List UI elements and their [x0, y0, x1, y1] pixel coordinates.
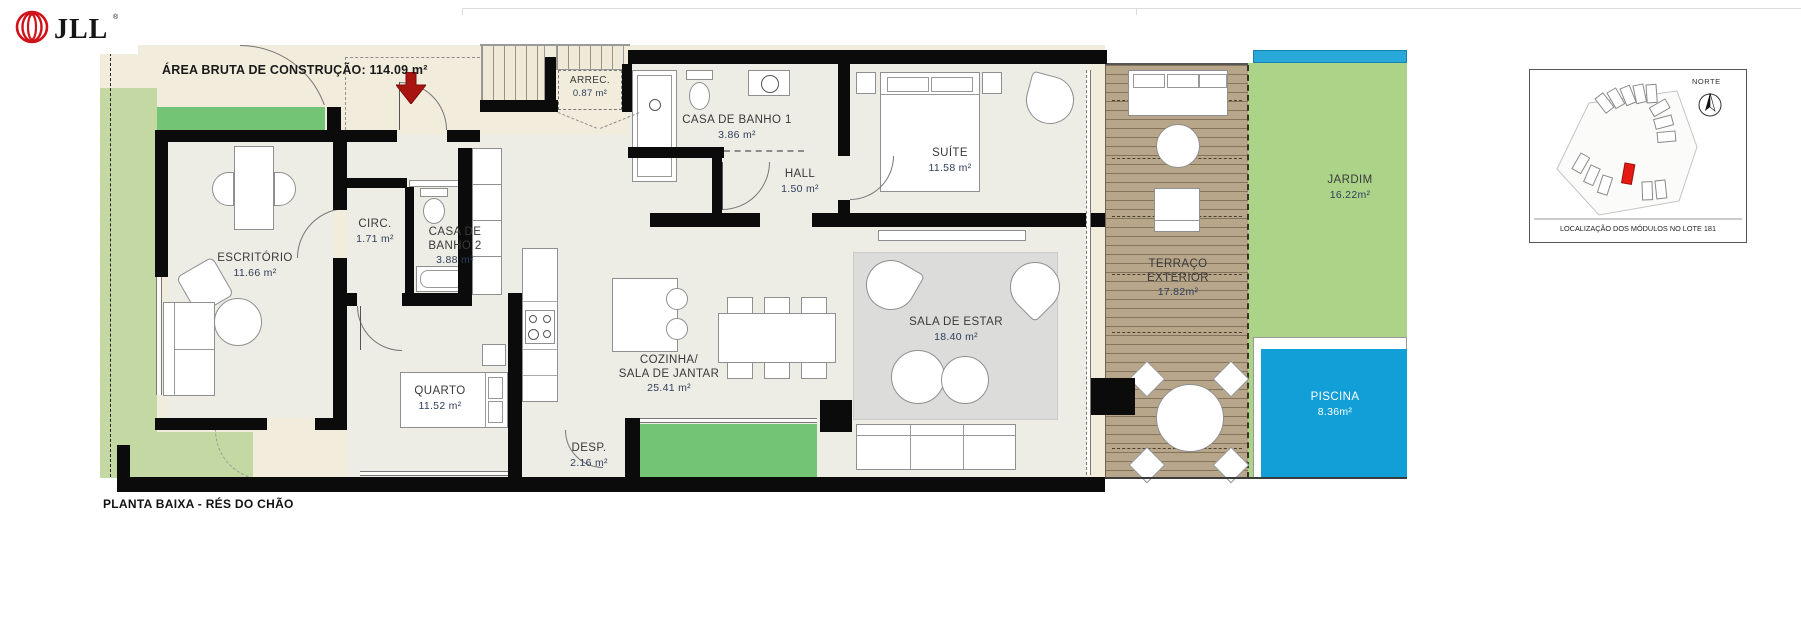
suite-door-arc [850, 156, 894, 200]
room-label-hall: HALL 1.50 m² [760, 168, 840, 195]
front-lawn-strip [157, 107, 325, 130]
dining-chair [764, 362, 790, 379]
north-label: NORTE [1692, 77, 1721, 86]
locator-site-map: NORTE LOCALIZAÇÃO DOS MÓDULOS NO LOTE 18… [1529, 69, 1747, 243]
wall [155, 130, 168, 277]
room-area: 2.16 m² [549, 457, 629, 469]
bath1-door-opening [724, 150, 804, 152]
door-leaf [360, 306, 361, 350]
room-label-cozinha: COZINHA/ SALA DE JANTAR 25.41 m² [594, 354, 744, 394]
wall [838, 200, 850, 213]
wall [347, 178, 407, 188]
outdoor-bottom-edge [1105, 477, 1407, 479]
dining-chair [764, 297, 790, 314]
office-round-table [214, 298, 262, 346]
south-lawn-strip [640, 424, 817, 477]
room-name: ARREC. [552, 75, 628, 87]
chimney [1087, 378, 1135, 415]
room-name: PISCINA [1285, 391, 1385, 405]
media-console [878, 230, 1026, 241]
office-window [156, 277, 162, 395]
washbasin [748, 70, 790, 96]
wall [347, 293, 357, 306]
room-area: 3.88 m² [407, 254, 503, 266]
room-area: 1.50 m² [760, 183, 840, 195]
wall [402, 293, 472, 306]
deck-plank-line [1112, 332, 1242, 333]
wall [327, 107, 341, 130]
toilet-bowl [689, 82, 710, 110]
stairs [481, 45, 545, 107]
wall [812, 213, 1105, 227]
wall [628, 50, 1107, 64]
suite-bed [880, 72, 980, 192]
room-area: 8.36m² [1285, 406, 1385, 418]
wall [117, 445, 130, 492]
bedroom-door-arc [357, 306, 402, 351]
room-name: CASA DE BANHO 2 [407, 226, 503, 253]
top-rule [462, 8, 1801, 9]
wall [333, 142, 347, 210]
wall [650, 213, 760, 227]
wall [820, 400, 852, 432]
room-name: QUARTO [380, 385, 500, 399]
property-boundary-line [110, 48, 111, 477]
office-desk [234, 146, 274, 230]
module [1646, 84, 1657, 103]
toilet [420, 188, 448, 197]
deck-sofa [1128, 70, 1228, 116]
wall [628, 147, 724, 158]
room-area: 25.41 m² [594, 382, 744, 394]
room-label-quarto: QUARTO 11.52 m² [380, 385, 500, 412]
room-label-desp: DESP. 2.16 m² [549, 442, 629, 469]
room-area: 17.82m² [1118, 286, 1238, 298]
toilet-bowl [423, 198, 445, 224]
registered-mark: ® [113, 13, 119, 21]
bedroom-side-table [482, 344, 506, 366]
wall [838, 64, 850, 156]
room-area: 3.86 m² [652, 129, 822, 141]
wall [155, 418, 267, 430]
brand-logo-text: JLL [54, 14, 108, 45]
wall [117, 477, 1105, 492]
dining-chair [801, 362, 827, 379]
bedroom-window [360, 471, 508, 476]
deck-top-edge [1105, 63, 1248, 65]
dining-chair [801, 297, 827, 314]
room-name: TERRAÇO EXTERIOR [1118, 258, 1238, 285]
deck-seat [1154, 188, 1200, 232]
room-name: SALA DE ESTAR [886, 316, 1026, 330]
garden-door-arc [215, 430, 265, 477]
module [1655, 180, 1667, 199]
room-label-terraco: TERRAÇO EXTERIOR 17.82m² [1118, 258, 1238, 298]
room-label-suite: SUÍTE 11.58 m² [900, 147, 1000, 174]
kitchen-island [612, 278, 678, 352]
nightstand [982, 72, 1002, 94]
room-label-arrec: ARREC. 0.87 m² [552, 75, 628, 99]
overhang-line [345, 57, 480, 58]
room-area: 11.52 m² [380, 400, 500, 412]
locator-caption: LOCALIZAÇÃO DOS MÓDULOS NO LOTE 181 [1560, 224, 1716, 233]
wall [712, 158, 722, 216]
kitchen-window [640, 418, 817, 423]
room-name: HALL [760, 168, 840, 182]
coffee-table [891, 350, 945, 404]
room-area: 0.87 m² [552, 88, 628, 99]
module [1657, 131, 1676, 143]
room-name: CASA DE BANHO 1 [652, 114, 822, 128]
room-area: 11.66 m² [195, 267, 315, 279]
nightstand [856, 72, 876, 94]
wall [458, 148, 472, 293]
wall [508, 293, 522, 477]
brand-logo: JLL ® [8, 2, 138, 54]
top-rule-tick [1136, 8, 1137, 15]
wall [345, 130, 397, 142]
top-rule-tick [462, 8, 463, 15]
room-label-banho2: CASA DE BANHO 2 3.88 m² [407, 226, 503, 266]
side-garden-band [100, 88, 157, 478]
room-label-banho1: CASA DE BANHO 1 3.86 m² [652, 114, 822, 141]
wall [447, 130, 480, 142]
coffee-table [941, 356, 989, 404]
site-locator: NORTE LOCALIZAÇÃO DOS MÓDULOS NO LOTE 18… [1529, 69, 1747, 243]
drawing-title: PLANTA BAIXA - RÉS DO CHÃO [103, 497, 294, 511]
door-leaf [722, 162, 723, 210]
jll-globe-icon: JLL ® [12, 6, 130, 50]
wall [155, 130, 347, 142]
toilet [686, 70, 713, 80]
dining-chair [727, 297, 753, 314]
room-label-piscina: PISCINA 8.36m² [1285, 391, 1385, 418]
wall [333, 258, 347, 430]
neighbor-pool-edge [1253, 50, 1407, 63]
module [1642, 182, 1653, 200]
kitchen-cabinet [472, 184, 502, 221]
stove [525, 310, 555, 344]
room-label-sala: SALA DE ESTAR 18.40 m² [886, 316, 1026, 343]
office-sofa [163, 302, 215, 396]
deck-garden-boundary [1247, 65, 1249, 478]
island-stool [666, 288, 688, 310]
floor-plan-sheet: JLL ® [0, 0, 1801, 637]
deck-dining-table [1156, 384, 1224, 452]
gross-area-label: ÁREA BRUTA DE CONSTRUÇÃO: 114.09 m² [162, 63, 428, 77]
room-name: COZINHA/ SALA DE JANTAR [594, 354, 744, 381]
room-name: DESP. [549, 442, 629, 456]
deck-round-table [1156, 124, 1200, 168]
room-label-escritorio: ESCRITÓRIO 11.66 m² [195, 252, 315, 279]
living-room-sofa [856, 424, 1016, 470]
island-stool [666, 318, 688, 340]
room-name: JARDIM [1300, 174, 1400, 188]
kitchen-cabinet [472, 148, 502, 185]
room-area: 18.40 m² [886, 331, 1026, 343]
room-name: ESCRITÓRIO [195, 252, 315, 266]
room-name: SUÍTE [900, 147, 1000, 161]
room-area: 11.58 m² [900, 162, 1000, 174]
glass-facade [1086, 70, 1091, 475]
room-label-jardim: JARDIM 16.22m² [1300, 174, 1400, 201]
room-area: 16.22m² [1300, 189, 1400, 201]
stairs-upper [556, 45, 624, 70]
